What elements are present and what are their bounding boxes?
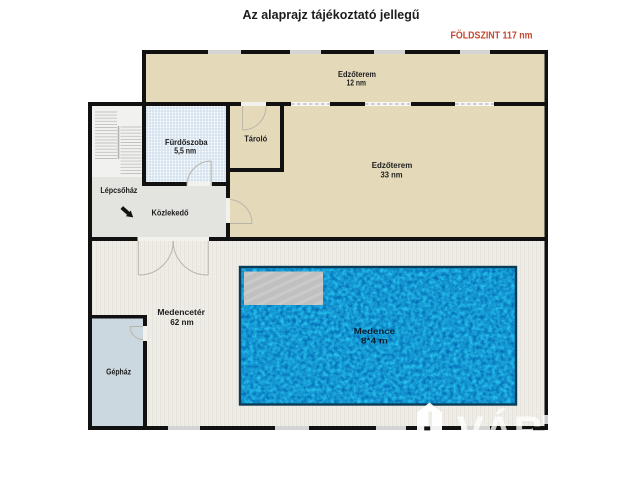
svg-text:VÁR: VÁR xyxy=(457,408,543,453)
svg-text:5,5 nm: 5,5 nm xyxy=(174,146,196,155)
svg-text:FÖLDSZINT 117 nm: FÖLDSZINT 117 nm xyxy=(451,29,533,42)
svg-text:Medencetér: Medencetér xyxy=(157,308,205,317)
svg-text:Közlekedő: Közlekedő xyxy=(152,208,189,217)
svg-text:33 nm: 33 nm xyxy=(381,169,403,179)
svg-text:62 nm: 62 nm xyxy=(170,318,194,327)
svg-text:Gépház: Gépház xyxy=(106,367,131,376)
svg-text:8*4 m: 8*4 m xyxy=(361,337,388,346)
svg-text:Lépcsőház: Lépcsőház xyxy=(100,186,137,195)
svg-text:Medence: Medence xyxy=(354,327,396,336)
svg-text:Tároló: Tároló xyxy=(244,134,267,143)
svg-text:Az alaprajz tájékoztató jelleg: Az alaprajz tájékoztató jellegű xyxy=(243,8,420,22)
svg-text:12 nm: 12 nm xyxy=(347,79,367,88)
